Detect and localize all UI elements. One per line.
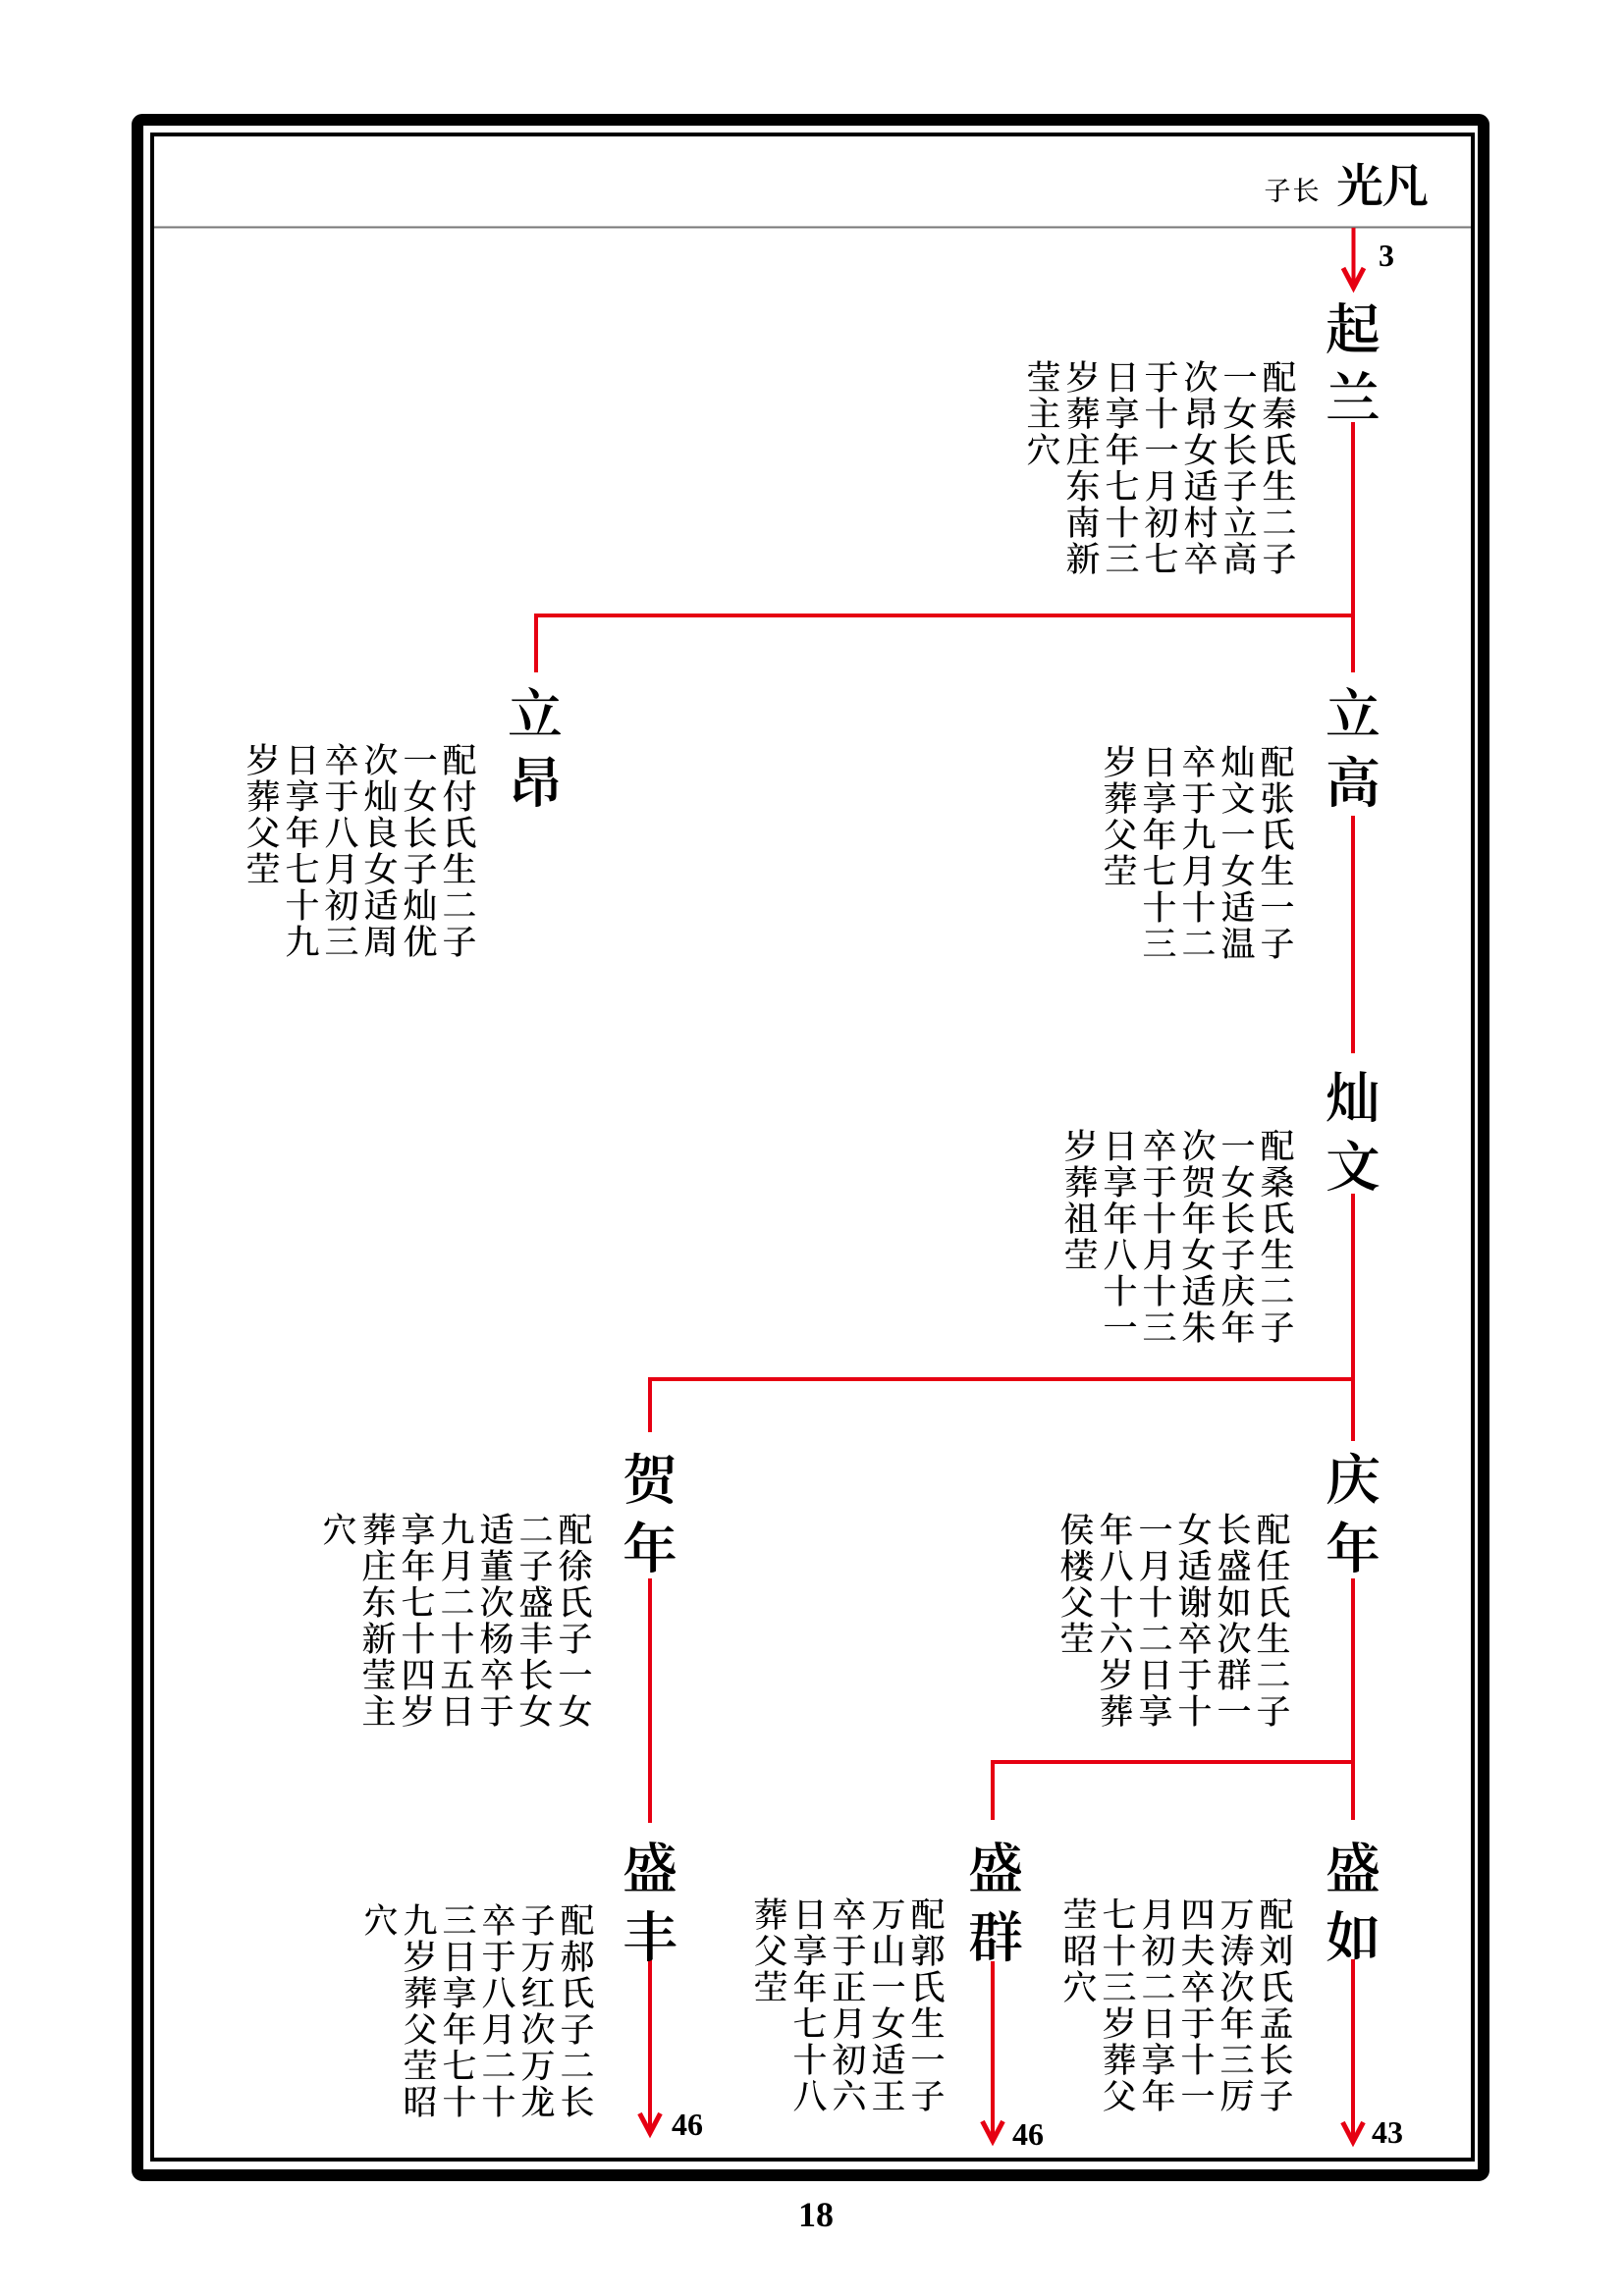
svg-text:43: 43 [1372, 2114, 1403, 2150]
svg-text:18: 18 [798, 2195, 834, 2234]
svg-text:46: 46 [1012, 2116, 1044, 2152]
svg-text:3: 3 [1379, 238, 1394, 273]
svg-text:46: 46 [672, 2107, 703, 2142]
